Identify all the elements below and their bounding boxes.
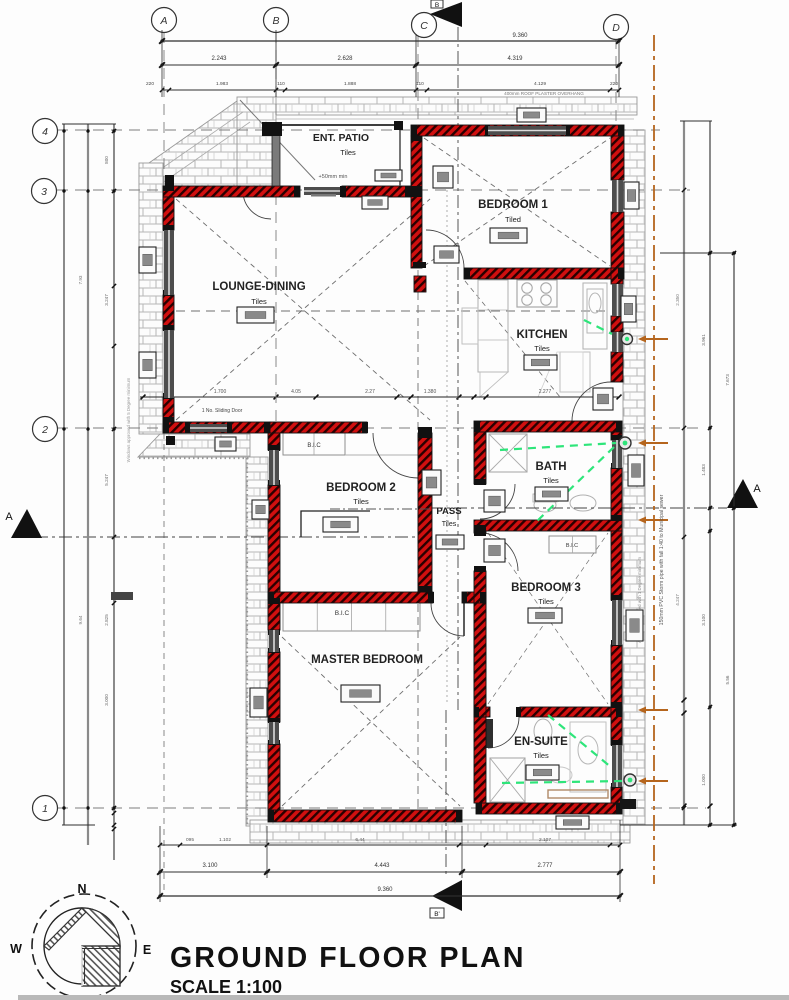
svg-text:1.000: 1.000 <box>701 774 706 786</box>
svg-text:B.I.C: B.I.C <box>566 543 578 549</box>
svg-text:B.I.C: B.I.C <box>307 443 321 449</box>
svg-text:A: A <box>753 483 761 495</box>
svg-text:3.100: 3.100 <box>202 863 218 869</box>
svg-text:Tiles: Tiles <box>353 497 369 506</box>
svg-text:220: 220 <box>146 81 154 87</box>
svg-text:GROUND FLOOR PLAN: GROUND FLOOR PLAN <box>170 942 526 974</box>
svg-text:BEDROOM 1: BEDROOM 1 <box>478 199 548 211</box>
svg-text:3.100: 3.100 <box>701 614 706 626</box>
svg-text:Windows approved with 5 Degree: Windows approved with 5 Degree minimum <box>126 377 131 462</box>
svg-text:B.I.C: B.I.C <box>335 610 350 617</box>
svg-text:Tiles: Tiles <box>340 148 356 157</box>
svg-text:4.129: 4.129 <box>534 81 546 87</box>
svg-text:800: 800 <box>104 156 109 164</box>
svg-text:B': B' <box>434 911 440 918</box>
svg-text:BATH: BATH <box>535 461 566 473</box>
svg-text:ENT. PATIO: ENT. PATIO <box>313 132 369 144</box>
svg-text:A: A <box>159 15 167 27</box>
svg-text:1.102: 1.102 <box>219 837 231 843</box>
svg-text:4.05: 4.05 <box>291 389 301 395</box>
svg-text:7.93: 7.93 <box>78 275 83 284</box>
svg-text:1.700: 1.700 <box>214 389 227 395</box>
svg-text:1.380: 1.380 <box>424 389 437 395</box>
svg-text:2.107: 2.107 <box>539 837 551 843</box>
svg-text:Tiles: Tiles <box>533 751 549 760</box>
svg-text:4.247: 4.247 <box>675 594 680 606</box>
svg-text:2.27: 2.27 <box>365 389 375 395</box>
svg-text:2.777: 2.777 <box>537 863 553 869</box>
svg-text:+50mm min: +50mm min <box>319 174 348 180</box>
svg-text:MASTER BEDROOM: MASTER BEDROOM <box>311 654 423 666</box>
svg-text:1.483: 1.483 <box>701 464 706 476</box>
svg-text:2.350: 2.350 <box>675 294 680 306</box>
svg-text:5.247: 5.247 <box>104 474 109 486</box>
svg-text:4.319: 4.319 <box>507 56 523 62</box>
svg-text:SCALE 1:100: SCALE 1:100 <box>170 977 282 997</box>
svg-text:1.888: 1.888 <box>344 81 356 87</box>
svg-text:2.243: 2.243 <box>211 56 227 62</box>
svg-text:3.000: 3.000 <box>104 694 109 706</box>
svg-text:Tiles: Tiles <box>251 297 267 306</box>
svg-text:1: 1 <box>42 803 48 815</box>
svg-text:B: B <box>435 2 439 9</box>
svg-text:4: 4 <box>42 126 48 138</box>
svg-text:2.825: 2.825 <box>104 614 109 626</box>
svg-text:Tiles: Tiles <box>538 597 554 606</box>
svg-text:150mm PVC Storm pipe with fall: 150mm PVC Storm pipe with fall 1:40 to M… <box>659 494 665 625</box>
svg-text:5.56: 5.56 <box>725 675 730 684</box>
svg-text:3: 3 <box>41 186 47 198</box>
svg-text:110: 110 <box>277 81 285 87</box>
svg-text:KITCHEN: KITCHEN <box>516 329 567 341</box>
svg-text:220: 220 <box>610 81 618 87</box>
svg-text:Tiles: Tiles <box>442 521 457 528</box>
svg-text:9.360: 9.360 <box>377 887 393 893</box>
svg-text:9.360: 9.360 <box>512 33 528 39</box>
svg-text:7.673: 7.673 <box>725 374 730 386</box>
svg-text:6.44: 6.44 <box>355 837 365 843</box>
svg-text:PASS: PASS <box>436 506 461 517</box>
svg-text:C: C <box>420 20 428 32</box>
svg-text:E: E <box>143 943 151 957</box>
svg-text:Tiles: Tiles <box>534 344 550 353</box>
svg-text:LOUNGE-DINING: LOUNGE-DINING <box>212 281 305 293</box>
svg-text:400mm ROOF PLASTER OVERHANG: 400mm ROOF PLASTER OVERHANG <box>504 91 584 96</box>
svg-text:EN-SUITE: EN-SUITE <box>514 736 568 748</box>
svg-text:9.64: 9.64 <box>78 615 83 624</box>
svg-text:BEDROOM 3: BEDROOM 3 <box>511 582 581 594</box>
svg-text:W: W <box>10 942 22 956</box>
svg-text:4.443: 4.443 <box>374 863 390 869</box>
svg-text:3.961: 3.961 <box>701 334 706 346</box>
svg-text:BEDROOM 2: BEDROOM 2 <box>326 482 396 494</box>
svg-text:A: A <box>5 511 13 523</box>
svg-text:Tiled: Tiled <box>505 215 521 224</box>
svg-text:095: 095 <box>186 837 194 843</box>
svg-text:2.628: 2.628 <box>337 56 353 62</box>
svg-text:110: 110 <box>416 81 424 87</box>
svg-text:Tiles: Tiles <box>543 476 559 485</box>
svg-text:3.247: 3.247 <box>104 294 109 306</box>
svg-text:D: D <box>612 22 620 34</box>
svg-text:N: N <box>77 882 86 896</box>
svg-text:1.983: 1.983 <box>216 81 228 87</box>
svg-text:2: 2 <box>41 424 48 436</box>
svg-text:B: B <box>272 15 279 27</box>
svg-text:2.277: 2.277 <box>539 389 552 395</box>
svg-text:1 No. Sliding Door: 1 No. Sliding Door <box>202 408 243 414</box>
